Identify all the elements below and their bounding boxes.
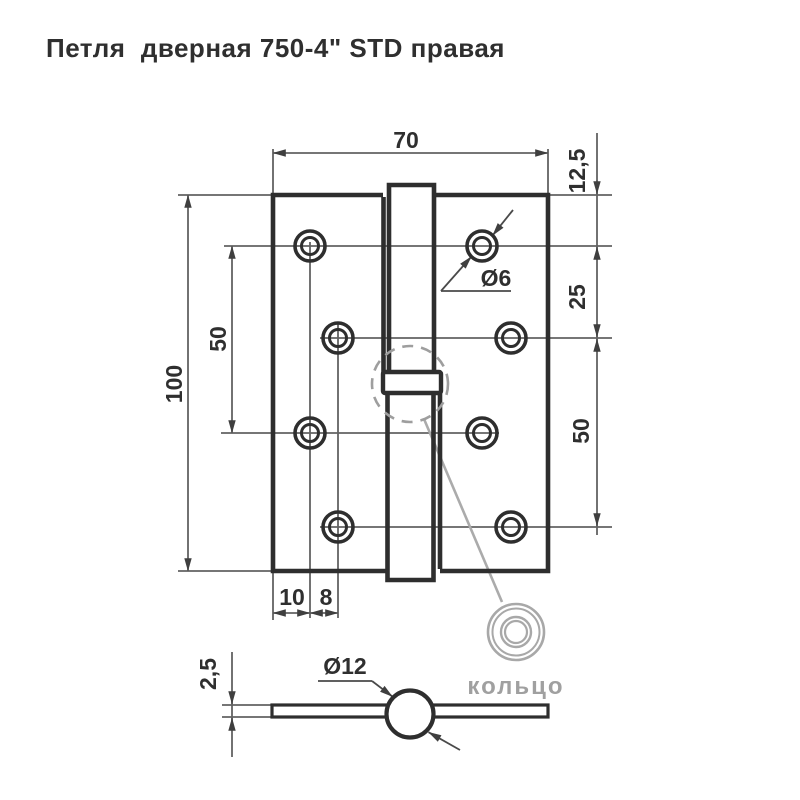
- ring-detail: кольцо: [467, 604, 564, 700]
- dim-right-span-label: 50: [568, 418, 594, 444]
- dim-thickness-label: 2,5: [195, 658, 221, 690]
- dim-edge-margin-label: 10: [279, 584, 305, 610]
- dim-width-label: 70: [393, 127, 419, 153]
- drawing-canvas: Петля дверная 750-4" STD правая: [0, 0, 800, 800]
- knuckle-step: [383, 372, 441, 393]
- dim-barrel-diameter-label: Ø12: [323, 653, 366, 679]
- hole-centerlines: [221, 242, 612, 618]
- main-view: 70 100 50 12,5 25 50 10 8 Ø6: [161, 127, 612, 620]
- dim-left-span-label: 50: [205, 326, 231, 352]
- dim-row-pitch-label: 25: [564, 284, 590, 310]
- dim-hole-diameter-label: Ø6: [481, 265, 512, 291]
- ring-label: кольцо: [467, 673, 564, 700]
- bottom-view: Ø12 2,5: [195, 652, 548, 757]
- hinge-drawing: 70 100 50 12,5 25 50 10 8 Ø6: [0, 0, 800, 800]
- ring-detail-icon: [488, 604, 544, 660]
- dim-height-label: 100: [161, 365, 187, 403]
- barrel-section-circle: [387, 691, 434, 738]
- bottom-extension-lines: [222, 705, 272, 717]
- dim-hole-inset-label: 8: [320, 584, 333, 610]
- dim-top-offset-label: 12,5: [564, 148, 590, 193]
